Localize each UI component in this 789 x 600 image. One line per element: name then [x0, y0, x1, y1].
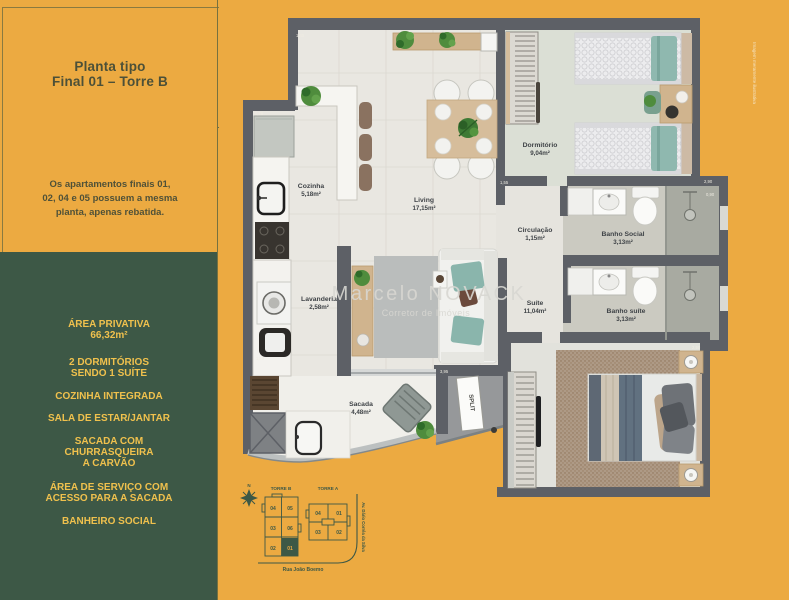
svg-text:5,18m²: 5,18m²: [301, 191, 321, 198]
svg-text:Av. Dário Corrêa da Silva: Av. Dário Corrêa da Silva: [361, 502, 366, 552]
svg-text:Banho Social: Banho Social: [601, 231, 644, 238]
svg-text:06: 06: [287, 526, 293, 532]
svg-text:Suíte: Suíte: [527, 300, 544, 307]
svg-text:05: 05: [287, 506, 293, 512]
svg-text:11,04m²: 11,04m²: [524, 308, 547, 315]
svg-text:Cozinha: Cozinha: [298, 183, 325, 190]
svg-text:17,15m²: 17,15m²: [412, 205, 435, 212]
svg-text:0,76: 0,76: [255, 111, 264, 116]
svg-text:Marcelo NOVACK: Marcelo NOVACK: [332, 283, 527, 305]
svg-text:2,58m²: 2,58m²: [309, 304, 329, 311]
svg-text:03: 03: [270, 526, 276, 532]
svg-text:01: 01: [336, 511, 342, 517]
svg-text:Imagem meramente ilustrativa: Imagem meramente ilustrativa: [752, 42, 757, 104]
svg-text:2,90: 2,90: [692, 345, 701, 350]
svg-text:04: 04: [315, 511, 321, 517]
svg-text:3,13m²: 3,13m²: [613, 239, 633, 246]
svg-text:02: 02: [270, 546, 276, 552]
svg-text:04: 04: [270, 506, 276, 512]
svg-text:1,55: 1,55: [500, 180, 509, 185]
svg-text:0,90: 0,90: [706, 192, 715, 197]
svg-text:1,59: 1,59: [256, 356, 265, 361]
svg-text:03: 03: [315, 530, 321, 536]
svg-text:Living: Living: [414, 197, 434, 204]
svg-text:01: 01: [287, 546, 293, 552]
svg-text:Corretor de Imóveis: Corretor de Imóveis: [382, 308, 471, 318]
svg-text:TORRE A: TORRE A: [318, 486, 339, 491]
svg-text:9,04m²: 9,04m²: [530, 150, 550, 157]
svg-text:N: N: [247, 483, 250, 488]
svg-text:1,15m²: 1,15m²: [525, 235, 545, 242]
svg-text:Rua João Boemo: Rua João Boemo: [283, 567, 324, 573]
svg-text:1,45: 1,45: [296, 33, 305, 38]
svg-text:Sacada: Sacada: [349, 401, 373, 408]
svg-text:02: 02: [336, 530, 342, 536]
svg-text:4,48m²: 4,48m²: [351, 409, 371, 416]
svg-text:3,13m²: 3,13m²: [616, 316, 636, 323]
svg-text:3,95: 3,95: [440, 369, 449, 374]
svg-text:Banho suíte: Banho suíte: [607, 308, 646, 315]
svg-text:2,90: 2,90: [704, 179, 713, 184]
svg-text:TORRE B: TORRE B: [271, 486, 292, 491]
svg-text:Dormitório: Dormitório: [523, 142, 558, 149]
svg-text:Circulação: Circulação: [518, 227, 553, 234]
